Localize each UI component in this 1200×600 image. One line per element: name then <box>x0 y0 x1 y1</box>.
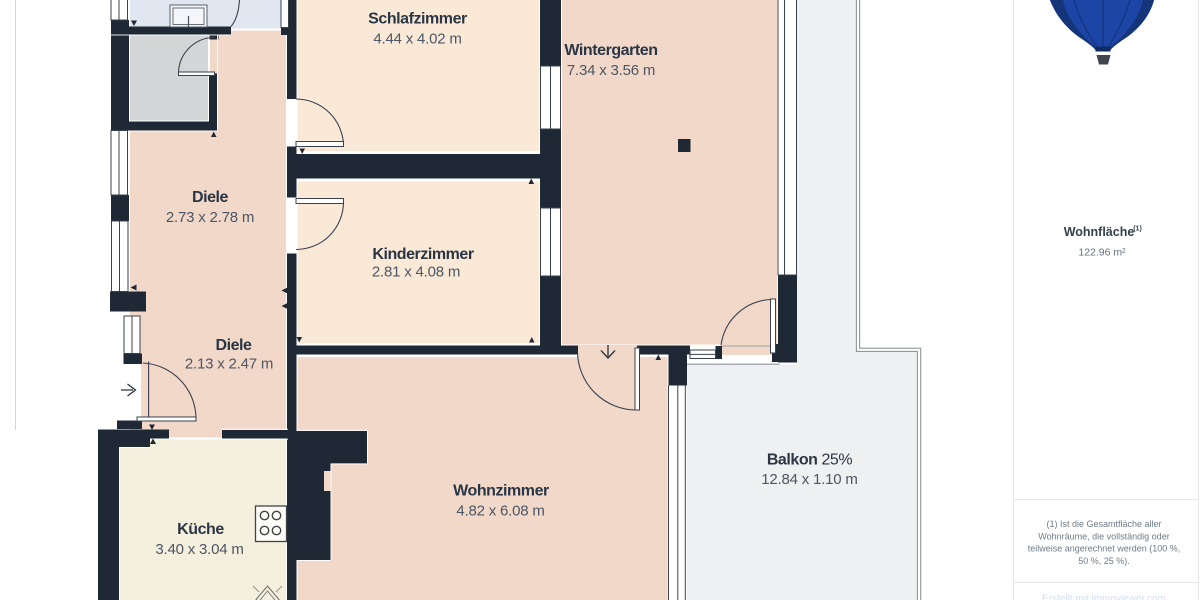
svg-text:4.44 x 4.02 m: 4.44 x 4.02 m <box>373 31 461 48</box>
svg-text:Balkon 25%: Balkon 25% <box>767 452 853 469</box>
svg-text:Erstellt mit immoviewer.com: Erstellt mit immoviewer.com <box>1042 594 1166 600</box>
svg-text:Diele: Diele <box>216 337 253 354</box>
svg-text:Küche: Küche <box>177 521 224 538</box>
svg-text:Wintergarten: Wintergarten <box>564 42 657 59</box>
svg-text:50 %, 25 %).: 50 %, 25 %). <box>1078 556 1130 566</box>
svg-text:4.82 x 6.08 m: 4.82 x 6.08 m <box>456 503 544 520</box>
svg-text:Wohnzimmer: Wohnzimmer <box>453 483 549 500</box>
svg-text:Wohnräume, die vollständig ode: Wohnräume, die vollständig oder <box>1038 531 1169 541</box>
svg-text:(1) Ist die Gesamtfläche aller: (1) Ist die Gesamtfläche aller <box>1046 519 1161 529</box>
svg-text:12.84 x 1.10 m: 12.84 x 1.10 m <box>761 471 857 488</box>
svg-text:(1): (1) <box>1133 226 1142 233</box>
svg-text:Kinderzimmer: Kinderzimmer <box>372 246 474 263</box>
svg-text:3.40 x 3.04 m: 3.40 x 3.04 m <box>155 541 243 558</box>
svg-text:teilweise angerechnet werden (: teilweise angerechnet werden (100 %, <box>1028 544 1181 554</box>
svg-text:Schlafzimmer: Schlafzimmer <box>368 11 467 28</box>
svg-text:7.34 x 3.56 m: 7.34 x 3.56 m <box>567 62 655 79</box>
svg-text:2.73 x 2.78 m: 2.73 x 2.78 m <box>166 209 254 226</box>
svg-text:Wohnfläche: Wohnfläche <box>1064 225 1135 239</box>
svg-text:Diele: Diele <box>192 189 229 206</box>
svg-text:122.96 m²: 122.96 m² <box>1078 247 1126 259</box>
svg-text:2.13 x 2.47 m: 2.13 x 2.47 m <box>185 356 273 373</box>
svg-text:2.81 x 4.08 m: 2.81 x 4.08 m <box>372 264 460 281</box>
